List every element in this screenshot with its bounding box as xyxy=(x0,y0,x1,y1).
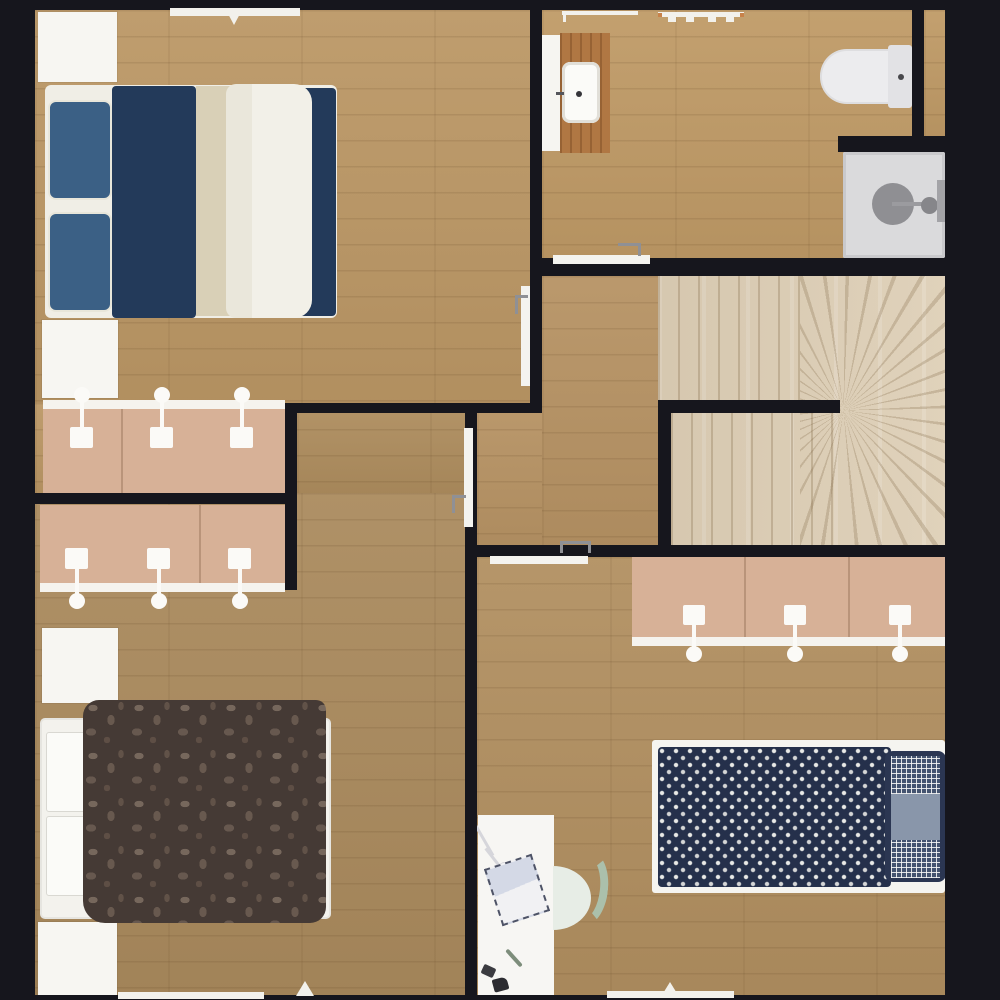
wall-stairs-inner-horizontal[interactable] xyxy=(658,400,840,413)
towel-hook xyxy=(686,13,694,22)
bed-blanket-navy[interactable] xyxy=(112,86,196,318)
desk-seam xyxy=(121,405,123,493)
bed-duvet-white[interactable] xyxy=(226,84,312,318)
door-handle[interactable] xyxy=(452,495,466,513)
wall-hallway-left[interactable] xyxy=(530,276,542,413)
stool-seat[interactable] xyxy=(787,646,803,662)
stool-seat[interactable] xyxy=(151,593,167,609)
door-bedroom-bottom-right[interactable] xyxy=(490,556,588,564)
wall-shower-top[interactable] xyxy=(838,136,945,152)
pillow-mid-band xyxy=(891,794,940,840)
pillow-grid-band xyxy=(891,756,940,794)
rail-cap xyxy=(740,13,744,17)
desk-seam xyxy=(744,557,746,639)
floor-bedroom-bottom-left-upper xyxy=(297,403,465,493)
stool-back[interactable] xyxy=(65,548,88,569)
radiator-tick xyxy=(563,14,566,22)
bed-duvet-polka[interactable] xyxy=(658,747,891,887)
stool-seat[interactable] xyxy=(232,593,248,609)
nightstand[interactable] xyxy=(42,628,118,703)
shower-bracket xyxy=(937,180,945,222)
towel-hook xyxy=(668,13,676,22)
bed-duvet-floral[interactable] xyxy=(83,700,326,923)
faucet-dot xyxy=(576,91,582,97)
shower-knob[interactable] xyxy=(921,197,938,214)
floor-plan-canvas xyxy=(0,0,1000,1000)
door-bathroom[interactable] xyxy=(553,255,650,264)
floor-bathroom-strip xyxy=(924,10,945,136)
door-handle[interactable] xyxy=(515,295,528,314)
wall-stairs-inner-vertical[interactable] xyxy=(658,400,671,545)
stool-back[interactable] xyxy=(150,427,173,448)
desk-seam xyxy=(199,505,201,585)
floor-hallway-west xyxy=(477,403,542,557)
wall-bedroom-bathroom[interactable] xyxy=(530,10,542,258)
stairs-treads-lower xyxy=(671,413,838,545)
wall-bathroom-right[interactable] xyxy=(912,10,924,138)
nightstand[interactable] xyxy=(38,12,117,82)
wall-bedroom-top-left-bottom[interactable] xyxy=(290,403,542,413)
toilet-flush-button[interactable] xyxy=(898,74,904,80)
wall-border-left[interactable] xyxy=(0,0,35,1000)
stool-back[interactable] xyxy=(230,427,253,448)
wall-border-right[interactable] xyxy=(945,0,1000,1000)
bed-pillow[interactable] xyxy=(48,212,112,312)
toilet-bowl[interactable] xyxy=(820,49,894,104)
nightstand[interactable] xyxy=(38,922,117,996)
window[interactable] xyxy=(118,992,264,999)
stool-seat[interactable] xyxy=(892,646,908,662)
stool-back[interactable] xyxy=(147,548,170,569)
door-handle[interactable] xyxy=(560,541,591,553)
stool-seat[interactable] xyxy=(686,646,702,662)
stool-back[interactable] xyxy=(228,548,251,569)
towel-hook xyxy=(726,13,734,22)
wall-nook-divider[interactable] xyxy=(285,403,297,590)
floor-hallway xyxy=(542,276,658,557)
bed-pillow[interactable] xyxy=(48,100,112,200)
pillow-grid-band xyxy=(891,840,940,878)
wall-border-top[interactable] xyxy=(0,0,1000,10)
bed-blanket-beige[interactable] xyxy=(196,86,230,316)
wall-bedroom-bottom-left-top[interactable] xyxy=(35,493,297,504)
radiator-bar xyxy=(562,11,638,15)
door-handle[interactable] xyxy=(618,243,641,256)
towel-hook xyxy=(708,13,716,22)
desk-seam xyxy=(848,557,850,639)
faucet-spout xyxy=(556,92,564,95)
stool-back[interactable] xyxy=(70,427,93,448)
stool-seat[interactable] xyxy=(69,593,85,609)
stairs-treads-upper xyxy=(658,276,803,400)
rail-cap xyxy=(658,13,662,17)
